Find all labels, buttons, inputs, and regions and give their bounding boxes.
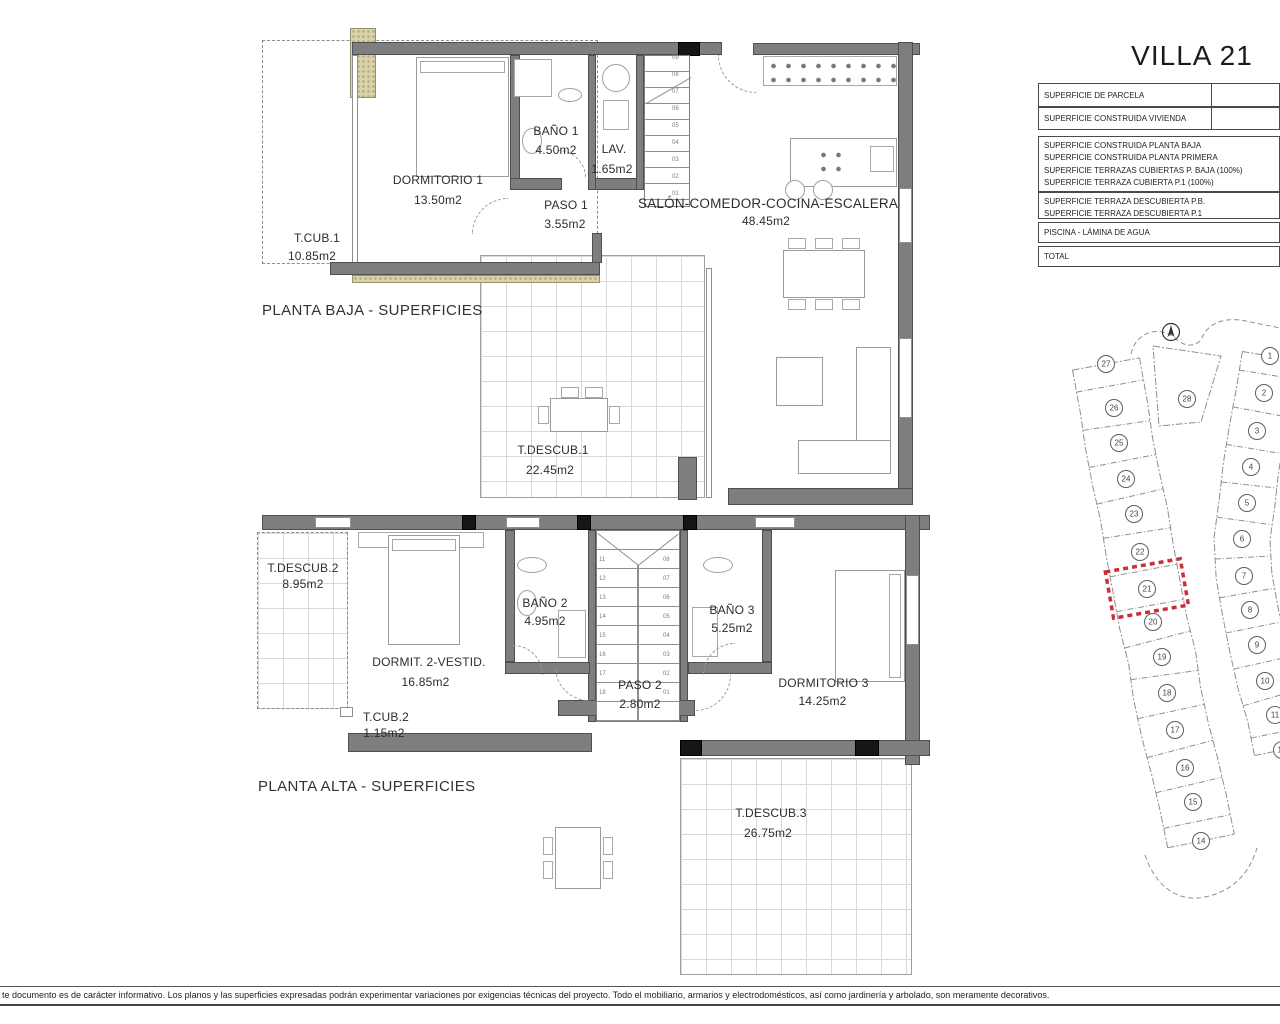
- stair-number: 01: [663, 690, 670, 696]
- plot-number: 19: [1158, 653, 1167, 662]
- plot-divider: [1226, 444, 1280, 453]
- sink: [870, 146, 894, 172]
- room-area: 4.95m2: [503, 615, 587, 628]
- window: [899, 188, 912, 243]
- window: [755, 517, 795, 528]
- plot-number: 2: [1262, 389, 1267, 398]
- planta-baja-plan: DORMITORIO 113.50m2BAÑO 14.50m2LAV.1.65m…: [258, 28, 938, 528]
- wall: [510, 178, 562, 190]
- door-arc: [555, 667, 589, 701]
- window: [506, 517, 540, 528]
- stair-number: 05: [663, 614, 670, 620]
- stair-number: 05: [672, 123, 679, 129]
- plot-number: 4: [1249, 463, 1254, 472]
- plot-divider: [1226, 622, 1280, 633]
- plot-divider: [1147, 740, 1213, 757]
- plot-divider: [1217, 517, 1272, 525]
- plot-number: 3: [1255, 427, 1260, 436]
- room-name: DORMIT. 2-VESTID.: [348, 656, 510, 671]
- washing-machine: [602, 64, 630, 92]
- drawing-sheet: VILLA 21 SUPERFICIE DE PARCELA SUPERFICI…: [0, 0, 1280, 1024]
- plot-divider: [1215, 556, 1271, 559]
- room-name: DORMITORIO 3: [755, 677, 892, 691]
- tdescub3-terrace: [680, 758, 912, 975]
- tdescub2-terrace: [257, 532, 348, 709]
- pillar: [678, 42, 700, 56]
- plot-number: 7: [1242, 572, 1247, 581]
- pillar: [855, 740, 879, 756]
- room-name: T.DESCUB.2: [259, 562, 347, 576]
- room-area: 10.85m2: [272, 250, 352, 264]
- stair-number: 13: [599, 595, 606, 601]
- room-area: 1.65m2: [584, 163, 640, 176]
- tdescub1-terrace: [480, 255, 705, 498]
- room-name: BAÑO 2: [503, 597, 587, 611]
- room-area: 1.15m2: [350, 727, 418, 740]
- stair-number: 11: [599, 557, 605, 563]
- table-row-label: SUPERFICIE DE PARCELA: [1044, 91, 1144, 100]
- pillar: [678, 457, 697, 500]
- plot-divider: [1156, 777, 1222, 793]
- insulation-hatch: [352, 275, 600, 283]
- washbasin: [703, 557, 733, 573]
- staircase: [644, 55, 690, 207]
- room-area: 5.25m2: [690, 622, 774, 635]
- pillar: [462, 515, 476, 530]
- washbasin: [558, 88, 582, 102]
- plot-number: 23: [1130, 510, 1139, 519]
- plot-divider: [1243, 690, 1280, 706]
- table-row-total: TOTAL: [1038, 246, 1280, 267]
- stair-number: 12: [599, 576, 606, 582]
- chair: [543, 861, 553, 879]
- wall: [588, 530, 596, 722]
- window: [899, 338, 912, 418]
- pillow: [392, 539, 456, 551]
- table-divider: [1211, 107, 1212, 130]
- stair-number: 06: [663, 595, 670, 601]
- stair-number: 07: [663, 576, 670, 582]
- wall: [762, 530, 772, 662]
- table-row-label: SUPERFICIE TERRAZA DESCUBIERTA P.B.: [1044, 196, 1279, 208]
- table-row-label: SUPERFICIE TERRAZA CUBIERTA P.1 (100%): [1044, 177, 1279, 189]
- plot-number: 8: [1248, 606, 1253, 615]
- chair: [603, 837, 613, 855]
- stair-number: 08: [663, 557, 670, 563]
- stair-number: 04: [672, 140, 679, 146]
- plot-number: 24: [1122, 475, 1131, 484]
- stair-number: 03: [672, 157, 679, 163]
- wall: [728, 488, 913, 505]
- room-name: PASO 1: [526, 199, 606, 213]
- door-arc: [513, 645, 543, 675]
- stair-number: 06: [672, 106, 679, 112]
- wall: [753, 43, 920, 55]
- shower: [514, 59, 552, 97]
- cooktop: [814, 146, 846, 176]
- wall: [680, 530, 688, 722]
- plot-boundary: [1153, 346, 1221, 426]
- stair-number: 18: [599, 690, 606, 696]
- room-area: 22.45m2: [490, 464, 610, 478]
- plot-divider: [1103, 528, 1170, 539]
- planta-alta-caption: PLANTA ALTA - SUPERFICIES: [258, 778, 476, 795]
- table-row-label: SUPERFICIE TERRAZAS CUBIERTAS P. BAJA (1…: [1044, 165, 1279, 177]
- table-divider: [1211, 83, 1212, 107]
- chair: [815, 238, 833, 249]
- table-row-parcela: SUPERFICIE DE PARCELA: [1038, 83, 1280, 107]
- kitchen-cabinets: [763, 56, 897, 86]
- table-row-label: TOTAL: [1044, 252, 1069, 261]
- chair: [561, 387, 579, 398]
- room-area: 8.95m2: [259, 578, 347, 591]
- chair: [585, 387, 603, 398]
- chair: [788, 299, 806, 310]
- door-arc: [695, 675, 731, 711]
- stair-number: 14: [599, 614, 606, 620]
- plot-divider: [1083, 421, 1150, 431]
- stair-number: 02: [672, 174, 679, 180]
- window-glass-wall: [706, 268, 712, 498]
- plot-number: 11: [1271, 711, 1280, 720]
- plot-number: 1: [1268, 352, 1273, 361]
- pillow: [889, 574, 901, 678]
- room-name: T.CUB.2: [350, 711, 422, 724]
- plot-number: 6: [1240, 535, 1245, 544]
- plot-boundary: [1214, 352, 1255, 756]
- room-area: 4.50m2: [522, 144, 590, 157]
- plot-divider: [1089, 455, 1156, 468]
- table-row-label: SUPERFICIE CONSTRUIDA PLANTA BAJA: [1044, 140, 1279, 152]
- plot-number: 27: [1102, 360, 1111, 369]
- room-area: 14.25m2: [755, 695, 890, 708]
- chair: [842, 238, 860, 249]
- stair-number: 08: [672, 72, 679, 78]
- site-plan: 2726252423222120191817161514123456789101…: [1035, 310, 1280, 910]
- bed: [416, 57, 509, 177]
- room-name: T.DESCUB.3: [681, 807, 861, 822]
- site-boundary: [1145, 848, 1257, 898]
- room-area: 13.50m2: [378, 194, 498, 208]
- chair: [815, 299, 833, 310]
- room-area: 48.45m2: [726, 215, 806, 229]
- room-area: 16.85m2: [348, 676, 503, 690]
- plot-number: 15: [1189, 798, 1198, 807]
- washbasin: [517, 557, 547, 573]
- stair-number: 01: [672, 191, 679, 197]
- sofa: [798, 440, 891, 474]
- chair: [842, 299, 860, 310]
- plot-number: 18: [1163, 689, 1172, 698]
- plot-number: 21: [1143, 585, 1152, 594]
- plot-divider: [1221, 482, 1277, 488]
- plot-divider: [1219, 588, 1274, 598]
- pillow: [420, 61, 505, 73]
- room-name: T.DESCUB.1: [493, 444, 613, 459]
- stair-number: 16: [599, 652, 606, 658]
- door-arc: [718, 55, 756, 93]
- site-plan-drawing: 2726252423222120191817161514123456789101…: [1035, 310, 1280, 910]
- disclaimer: te documento es de carácter informativo.…: [0, 986, 1280, 1006]
- wall: [262, 515, 930, 530]
- stair-number: 03: [663, 652, 670, 658]
- stair-number: 09: [672, 55, 679, 61]
- plot-divider: [1233, 407, 1280, 417]
- plot-divider: [1125, 631, 1191, 648]
- room-name: DORMITORIO 1: [378, 174, 498, 190]
- chair: [603, 861, 613, 879]
- chair: [788, 238, 806, 249]
- table-row-label: PISCINA - LÁMINA DE AGUA: [1044, 228, 1150, 237]
- plot-number: 16: [1181, 764, 1190, 773]
- wall: [505, 530, 515, 662]
- planta-baja-caption: PLANTA BAJA - SUPERFICIES: [262, 302, 483, 319]
- room-area: 26.75m2: [678, 827, 858, 840]
- stair-number: 07: [672, 89, 679, 95]
- coffee-table: [776, 357, 823, 406]
- plot-divider: [1164, 815, 1231, 829]
- plot-number: 17: [1171, 726, 1180, 735]
- terrace-table: [555, 827, 601, 889]
- table-row-label: SUPERFICIE CONSTRUIDA VIVIENDA: [1044, 114, 1186, 123]
- chair: [543, 837, 553, 855]
- plot-divider: [1251, 727, 1280, 738]
- wall: [592, 233, 602, 263]
- chair: [538, 406, 549, 424]
- plot-number: 26: [1110, 404, 1119, 413]
- wall: [898, 42, 913, 505]
- page-title: VILLA 21: [1107, 40, 1277, 72]
- room-name: T.CUB.1: [277, 232, 357, 246]
- window: [906, 575, 919, 645]
- plot-number: 14: [1197, 837, 1206, 846]
- wall: [330, 262, 600, 275]
- wall: [680, 740, 930, 756]
- plot-number: 9: [1255, 641, 1260, 650]
- plot-divider: [1097, 489, 1163, 504]
- plot-number: 28: [1183, 395, 1192, 404]
- table-row-label: SUPERFICIE CONSTRUIDA PLANTA PRIMERA: [1044, 152, 1279, 164]
- terrace-table: [550, 398, 608, 432]
- room-name: BAÑO 3: [690, 604, 774, 618]
- dining-table: [783, 250, 865, 298]
- plot-divider: [1117, 599, 1184, 611]
- planta-alta-plan: T.DESCUB.28.95m2DORMIT. 2-VESTID.16.85m2…: [255, 515, 935, 975]
- room-name: SALÓN-COMEDOR-COCINA-ESCALERA: [638, 196, 892, 212]
- stair-number: 15: [599, 633, 606, 639]
- room-area: 3.55m2: [525, 218, 605, 232]
- chair: [609, 406, 620, 424]
- plot-number: 5: [1245, 499, 1250, 508]
- room-name: BAÑO 1: [522, 125, 590, 139]
- pillar: [683, 515, 697, 530]
- plot-number: 22: [1136, 548, 1145, 557]
- table-row-construida-group: SUPERFICIE CONSTRUIDA PLANTA BAJA SUPERF…: [1038, 136, 1280, 192]
- wall: [352, 42, 722, 55]
- table-row-vivienda: SUPERFICIE CONSTRUIDA VIVIENDA: [1038, 107, 1280, 130]
- plot-number: 10: [1261, 677, 1270, 686]
- window: [315, 517, 351, 528]
- plot-divider: [1234, 657, 1280, 669]
- stair-number: 02: [663, 671, 670, 677]
- room-area: 2.80m2: [600, 698, 680, 711]
- table-row-label: SUPERFICIE TERRAZA DESCUBIERTA P.1: [1044, 208, 1279, 220]
- stair-number: 04: [663, 633, 670, 639]
- room-name: LAV.: [590, 143, 638, 156]
- bed: [388, 535, 460, 645]
- pillar: [577, 515, 591, 530]
- plot-number: 20: [1149, 618, 1158, 627]
- pillar: [680, 740, 702, 756]
- plot-divider: [1239, 370, 1280, 379]
- plot-divider: [1131, 670, 1198, 679]
- plot-number: 25: [1115, 439, 1124, 448]
- table-row-piscina: PISCINA - LÁMINA DE AGUA: [1038, 222, 1280, 243]
- plot-divider: [1138, 704, 1204, 718]
- appliance: [603, 100, 629, 130]
- stair-number: 17: [599, 671, 606, 677]
- table-row-descubierta-group: SUPERFICIE TERRAZA DESCUBIERTA P.B. SUPE…: [1038, 192, 1280, 219]
- plot-divider: [1077, 380, 1144, 392]
